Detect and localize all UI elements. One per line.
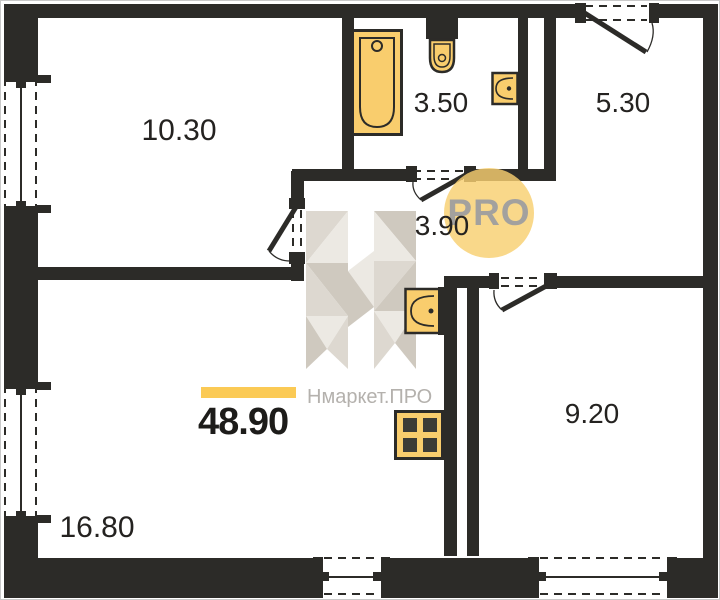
total-area-value: 48.90 (198, 401, 288, 444)
room-area-label: 3.50 (414, 87, 469, 119)
room-area-label: 16.80 (59, 511, 134, 545)
room-area-label: 9.20 (565, 398, 620, 430)
room-area-label: 5.30 (596, 87, 651, 119)
brand-name-text: Нмаркет.ПРО (307, 386, 432, 409)
entrance-door (583, 12, 653, 52)
room-area-label: 3.90 (415, 210, 470, 242)
opening-dashes (5, 6, 666, 594)
total-area-accent-bar (201, 387, 296, 398)
floor-plan: PRO 10.30 3.50 5.30 3.90 9.20 16.80 48.9… (0, 0, 720, 600)
room-top-left-door (269, 207, 296, 261)
room-bottom-right-door (494, 285, 548, 310)
room-area-label: 10.30 (141, 114, 216, 148)
